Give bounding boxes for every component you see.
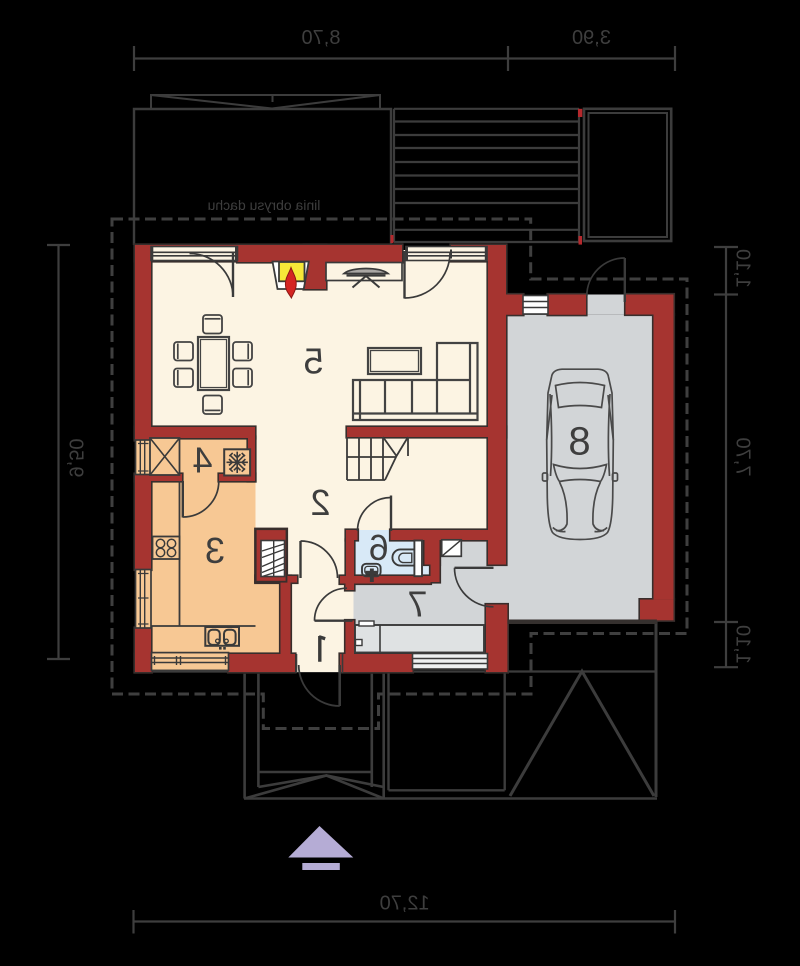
svg-text:3,90: 3,90: [572, 27, 611, 49]
svg-text:8: 8: [568, 420, 590, 464]
svg-text:7: 7: [407, 584, 427, 625]
svg-text:8,70: 8,70: [302, 27, 341, 49]
svg-text:5: 5: [303, 341, 323, 382]
svg-text:linia obrysu dachu: linia obrysu dachu: [208, 197, 321, 213]
svg-text:12,70: 12,70: [380, 893, 430, 915]
svg-text:3: 3: [205, 530, 225, 571]
svg-text:9,50: 9,50: [65, 439, 87, 478]
svg-text:1,10: 1,10: [732, 249, 754, 288]
svg-text:2: 2: [310, 482, 330, 523]
svg-text:1,10: 1,10: [732, 625, 754, 664]
svg-text:7,70: 7,70: [732, 438, 754, 477]
svg-text:6: 6: [369, 527, 389, 568]
svg-text:4: 4: [192, 440, 212, 481]
